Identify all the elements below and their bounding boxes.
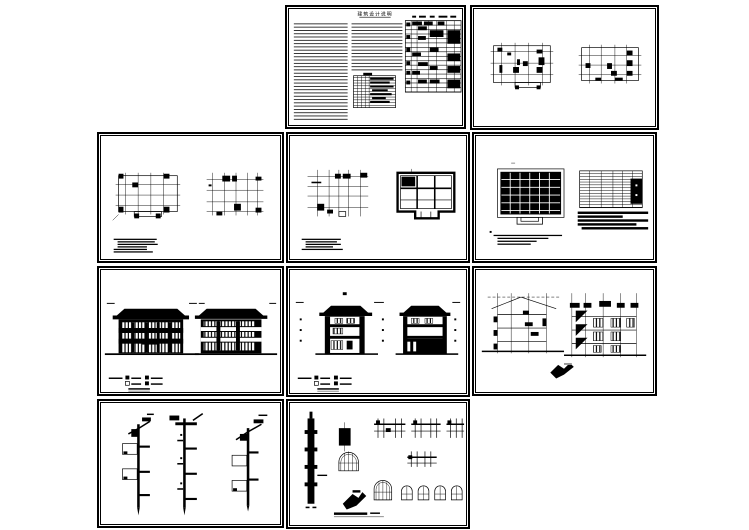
- section-right: [564, 293, 646, 357]
- wall-detail-2: [169, 414, 202, 516]
- roof-plan-schedule-drawing: [474, 134, 655, 261]
- level-dashes: [296, 292, 460, 341]
- arched-window-small-1: [401, 486, 412, 500]
- materials-mini-table: [353, 73, 395, 108]
- sheet-elevations-side: [286, 266, 470, 397]
- sheet-title-text: 建筑设计说明: [357, 11, 392, 18]
- material-legend: [298, 376, 352, 392]
- wall-detail-3: [232, 415, 267, 512]
- side-elevations-drawing: [288, 268, 468, 395]
- sheet-window-details: [286, 399, 470, 529]
- wall-detail-1: [122, 414, 153, 516]
- floor-plan-right: [579, 45, 642, 84]
- floor-plan-left: [491, 43, 554, 89]
- arched-window-medium: [374, 480, 392, 499]
- railing-detail-3: [446, 418, 464, 437]
- structural-plan-right: [207, 173, 264, 216]
- wall-details-drawing: [99, 401, 282, 526]
- schedule-notes-block: [578, 212, 648, 230]
- stair-detail-callout: [550, 363, 573, 379]
- railing-detail-2: [411, 418, 440, 437]
- roof-plan: [497, 163, 564, 224]
- sheet-wall-details: [97, 399, 284, 528]
- arched-window-large: [339, 451, 359, 470]
- foundation-plan: [398, 169, 455, 218]
- sheet-sections: [472, 266, 657, 396]
- sheet-elevations-front: [97, 266, 284, 396]
- arched-window-small-3: [435, 486, 446, 500]
- elevation-left: [105, 309, 199, 355]
- sheet-plan-foundation: [286, 132, 470, 263]
- gutter-detail-callout: [334, 490, 384, 517]
- sheet-design-notes: 建筑设计说明: [285, 5, 466, 129]
- arched-window-small-2: [418, 486, 429, 500]
- column-detail: [305, 412, 328, 509]
- window-details-drawing: [288, 401, 468, 527]
- plan-foundation-drawing: [288, 134, 468, 261]
- cad-sheet-collage: 建筑设计说明: [0, 0, 749, 530]
- structural-plan-left: [113, 173, 181, 221]
- sheet-title: 建筑设计说明: [357, 11, 392, 18]
- sheet-roof-plan-schedule: [472, 132, 657, 263]
- section-left: [482, 293, 564, 353]
- beam-detail: [339, 422, 351, 451]
- side-elevation-right: [396, 306, 459, 355]
- sheet-floor-plans: [470, 5, 659, 130]
- sheet-structural-plans: [97, 132, 284, 263]
- side-elevation-left: [315, 306, 378, 355]
- grid-plan: [308, 170, 369, 217]
- door-window-schedule-table: [580, 171, 643, 208]
- elevation-right: [195, 309, 277, 355]
- railing-detail-1: [374, 418, 405, 437]
- notes-lines: [302, 239, 343, 250]
- railing-detail-4: [407, 451, 436, 467]
- floor-plans-drawing: [472, 7, 657, 128]
- structural-plans-drawing: [99, 134, 282, 261]
- material-legend: [109, 376, 163, 392]
- drawing-schedule-table: [405, 16, 461, 92]
- front-elevations-drawing: [99, 268, 282, 394]
- sections-drawing: [474, 268, 655, 394]
- notes-lines: [490, 231, 562, 245]
- level-dashes: [107, 303, 276, 304]
- arched-window-small-4: [451, 486, 462, 500]
- design-notes-drawing: 建筑设计说明: [287, 7, 464, 127]
- notes-lines: [114, 239, 158, 253]
